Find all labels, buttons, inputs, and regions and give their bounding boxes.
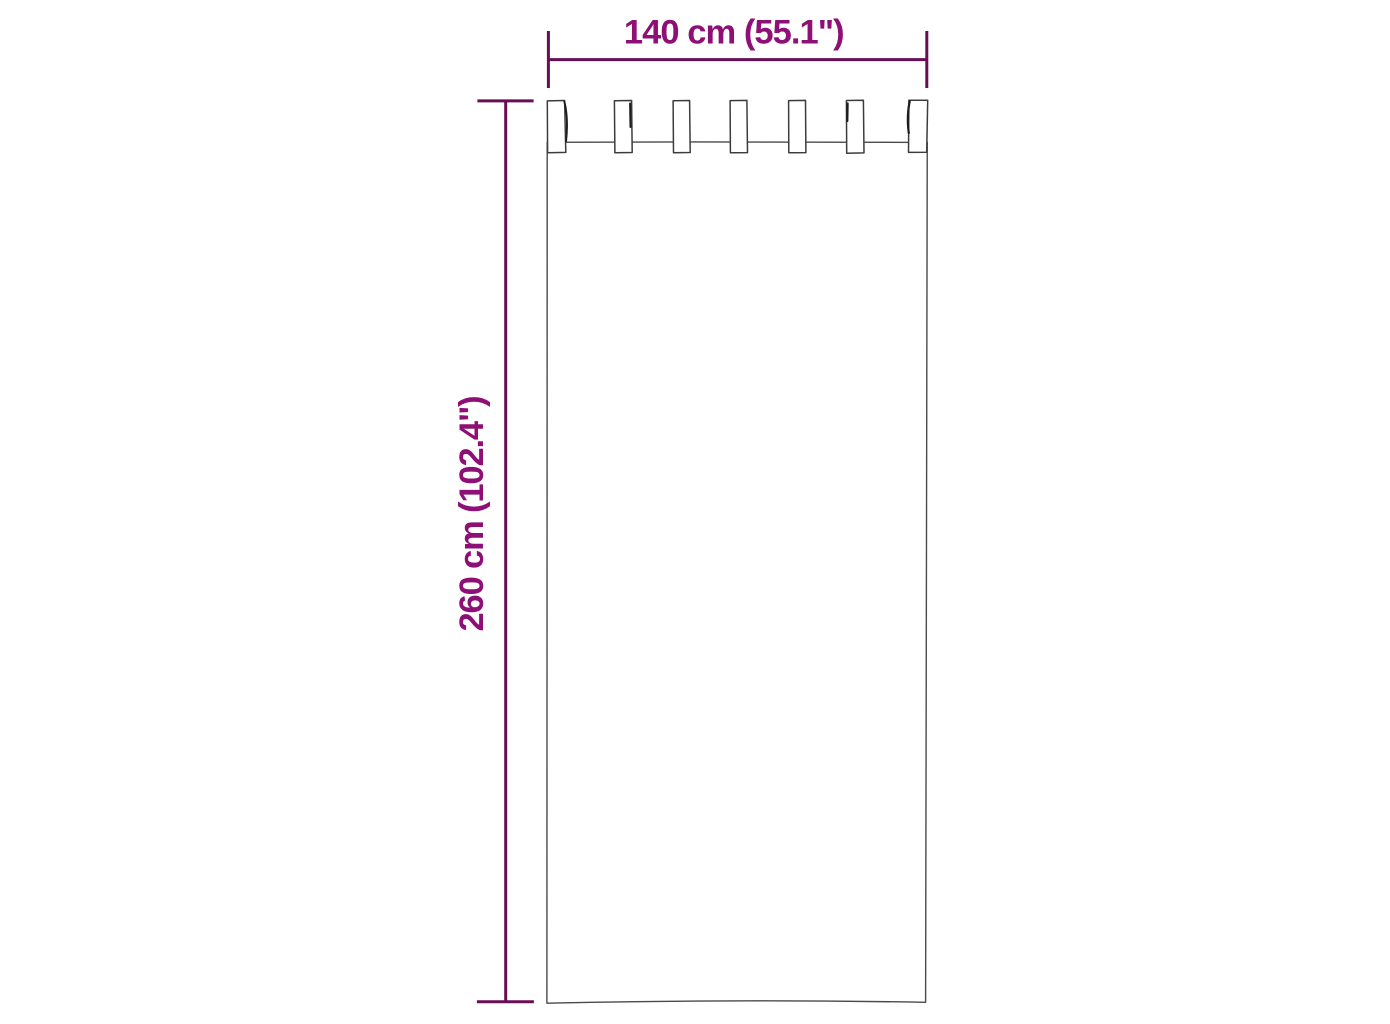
svg-text:260 cm (102.4"): 260 cm (102.4") — [453, 396, 491, 631]
svg-text:140 cm (55.1"): 140 cm (55.1") — [624, 14, 844, 52]
